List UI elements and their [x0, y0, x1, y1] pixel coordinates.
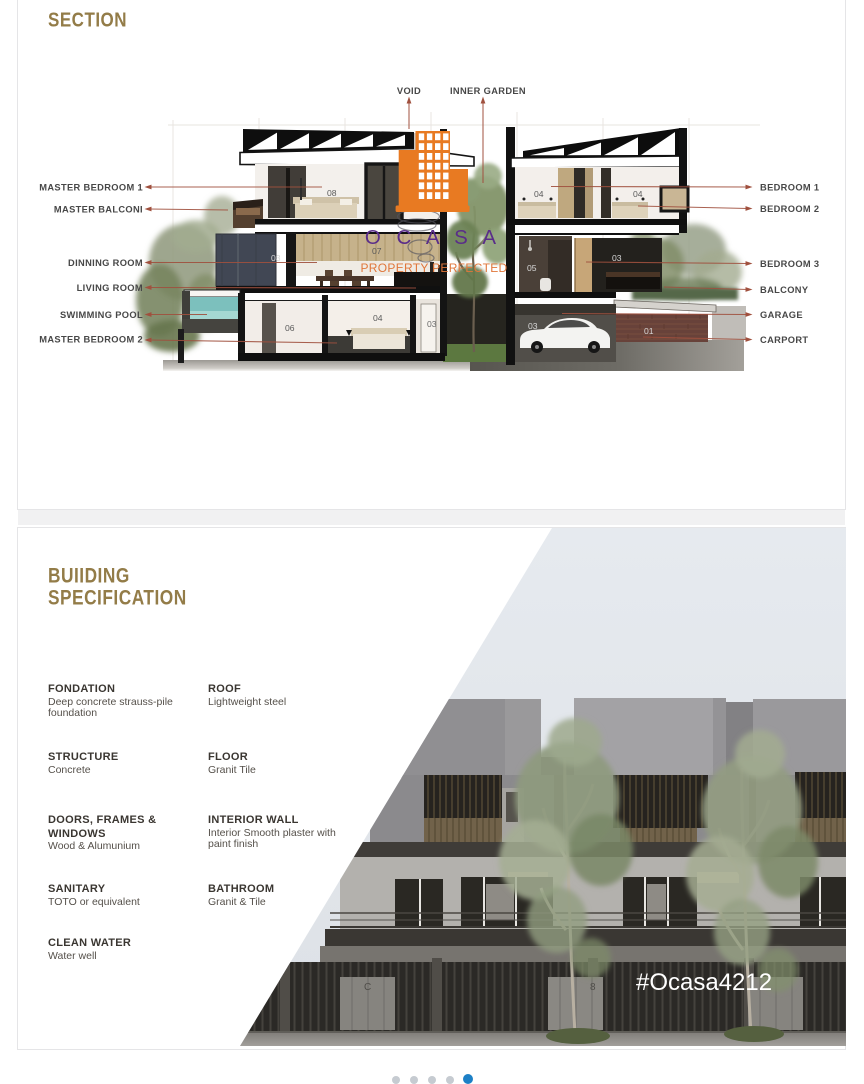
svg-text:MASTER BEDROOM 1: MASTER BEDROOM 1 [39, 183, 143, 193]
svg-text:03: 03 [271, 253, 281, 263]
svg-text:05: 05 [527, 263, 537, 273]
svg-text:01: 01 [644, 326, 654, 336]
svg-text:MASTER BALCONI: MASTER BALCONI [54, 205, 143, 215]
svg-text:8: 8 [590, 982, 596, 993]
svg-text:CARPORT: CARPORT [760, 335, 808, 345]
svg-text:C: C [364, 982, 371, 993]
svg-text:SWIMMING POOL: SWIMMING POOL [60, 310, 143, 320]
svg-text:BALCONY: BALCONY [760, 285, 809, 295]
svg-text:MASTER BEDROOM 2: MASTER BEDROOM 2 [39, 335, 143, 345]
svg-text:04: 04 [633, 189, 643, 199]
svg-text:06: 06 [285, 323, 295, 333]
svg-text:#Ocasa4212: #Ocasa4212 [636, 969, 772, 996]
svg-text:04: 04 [534, 189, 544, 199]
svg-text:PROPERTY PERFECTED: PROPERTY PERFECTED [361, 261, 508, 275]
svg-text:GARAGE: GARAGE [760, 310, 803, 320]
svg-text:03: 03 [528, 321, 538, 331]
svg-text:BEDROOM 3: BEDROOM 3 [760, 259, 819, 269]
svg-text:DINNING ROOM: DINNING ROOM [68, 258, 143, 268]
svg-text:03: 03 [427, 319, 437, 329]
svg-text:INNER GARDEN: INNER GARDEN [450, 86, 526, 96]
svg-text:O C A S A: O C A S A [365, 226, 501, 249]
svg-text:03: 03 [612, 253, 622, 263]
svg-text:04: 04 [373, 313, 383, 323]
svg-text:BEDROOM 1: BEDROOM 1 [760, 183, 819, 193]
svg-text:VOID: VOID [397, 86, 421, 96]
svg-text:BEDROOM 2: BEDROOM 2 [760, 204, 819, 214]
svg-text:08: 08 [327, 188, 337, 198]
svg-text:LIVING ROOM: LIVING ROOM [77, 283, 143, 293]
